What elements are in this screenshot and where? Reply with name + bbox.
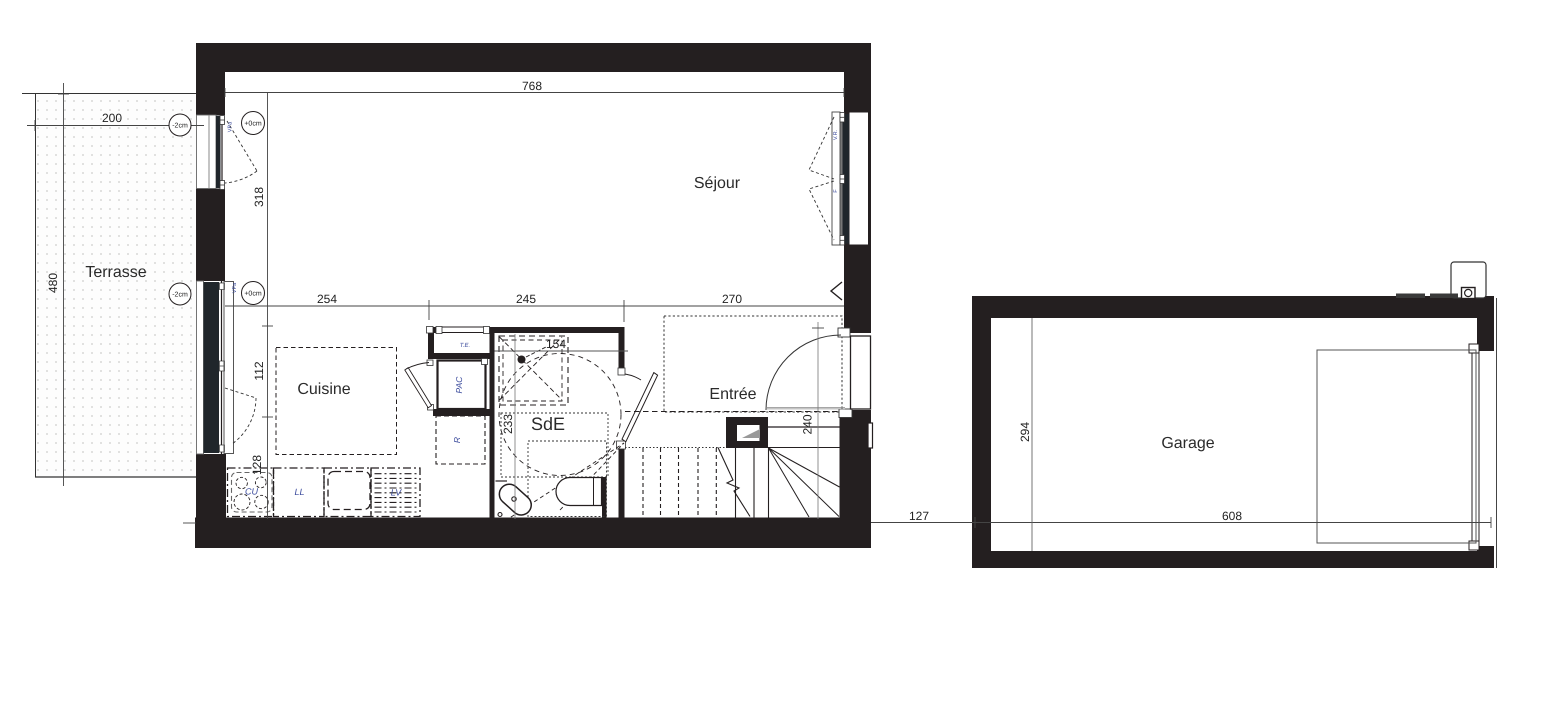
svg-text:Entrée: Entrée xyxy=(709,386,756,403)
svg-text:112: 112 xyxy=(252,361,266,380)
svg-text:R: R xyxy=(452,437,462,443)
svg-text:318: 318 xyxy=(252,187,266,207)
svg-text:Terrasse: Terrasse xyxy=(85,264,146,281)
svg-text:PAC: PAC xyxy=(454,376,464,394)
svg-text:294: 294 xyxy=(1018,422,1032,442)
svg-text:240: 240 xyxy=(801,414,815,434)
svg-text:200: 200 xyxy=(102,111,122,125)
svg-text:VPa: VPa xyxy=(232,282,238,293)
svg-text:128: 128 xyxy=(250,455,264,475)
svg-text:-2cm: -2cm xyxy=(172,123,188,130)
svg-text:V.R.: V.R. xyxy=(833,129,839,140)
svg-text:768: 768 xyxy=(522,79,542,93)
svg-text:270: 270 xyxy=(722,292,742,306)
svg-text:480: 480 xyxy=(46,273,60,293)
svg-text:+0cm: +0cm xyxy=(244,291,261,298)
svg-text:Garage: Garage xyxy=(1161,435,1214,452)
svg-text:+0cm: +0cm xyxy=(244,121,261,128)
svg-text:233: 233 xyxy=(501,414,515,434)
svg-text:127: 127 xyxy=(909,509,929,523)
svg-text:SdE: SdE xyxy=(531,414,565,434)
svg-text:254: 254 xyxy=(317,292,337,306)
svg-text:608: 608 xyxy=(1222,509,1242,523)
svg-text:LV: LV xyxy=(391,488,403,498)
svg-text:T.E.: T.E. xyxy=(460,342,470,349)
svg-text:Cuisine: Cuisine xyxy=(297,381,350,398)
svg-text:Séjour: Séjour xyxy=(694,175,741,192)
svg-text:LL: LL xyxy=(294,487,304,497)
svg-text:245: 245 xyxy=(516,292,536,306)
svg-text:154: 154 xyxy=(546,337,566,351)
svg-text:VPa: VPa xyxy=(228,121,234,132)
svg-text:-2cm: -2cm xyxy=(172,292,188,299)
svg-text:CU: CU xyxy=(245,487,258,497)
